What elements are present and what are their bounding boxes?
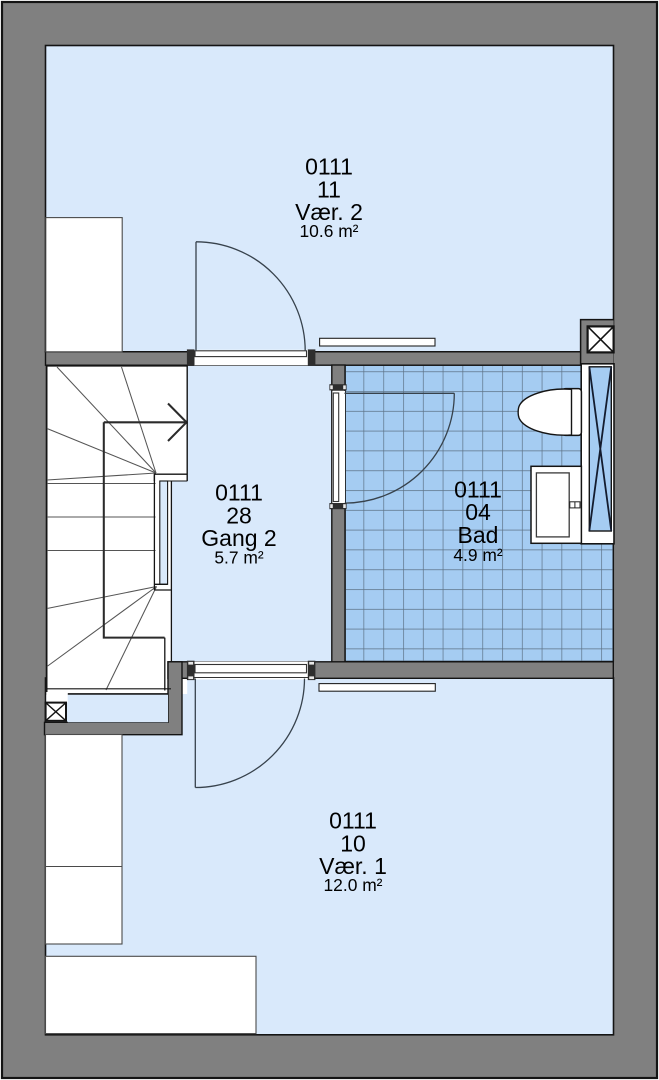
svg-text:10.6 m²: 10.6 m² <box>300 221 359 241</box>
svg-text:4.9 m²: 4.9 m² <box>453 545 502 565</box>
svg-text:5.7 m²: 5.7 m² <box>214 548 263 568</box>
svg-text:12.0 m²: 12.0 m² <box>324 875 383 895</box>
